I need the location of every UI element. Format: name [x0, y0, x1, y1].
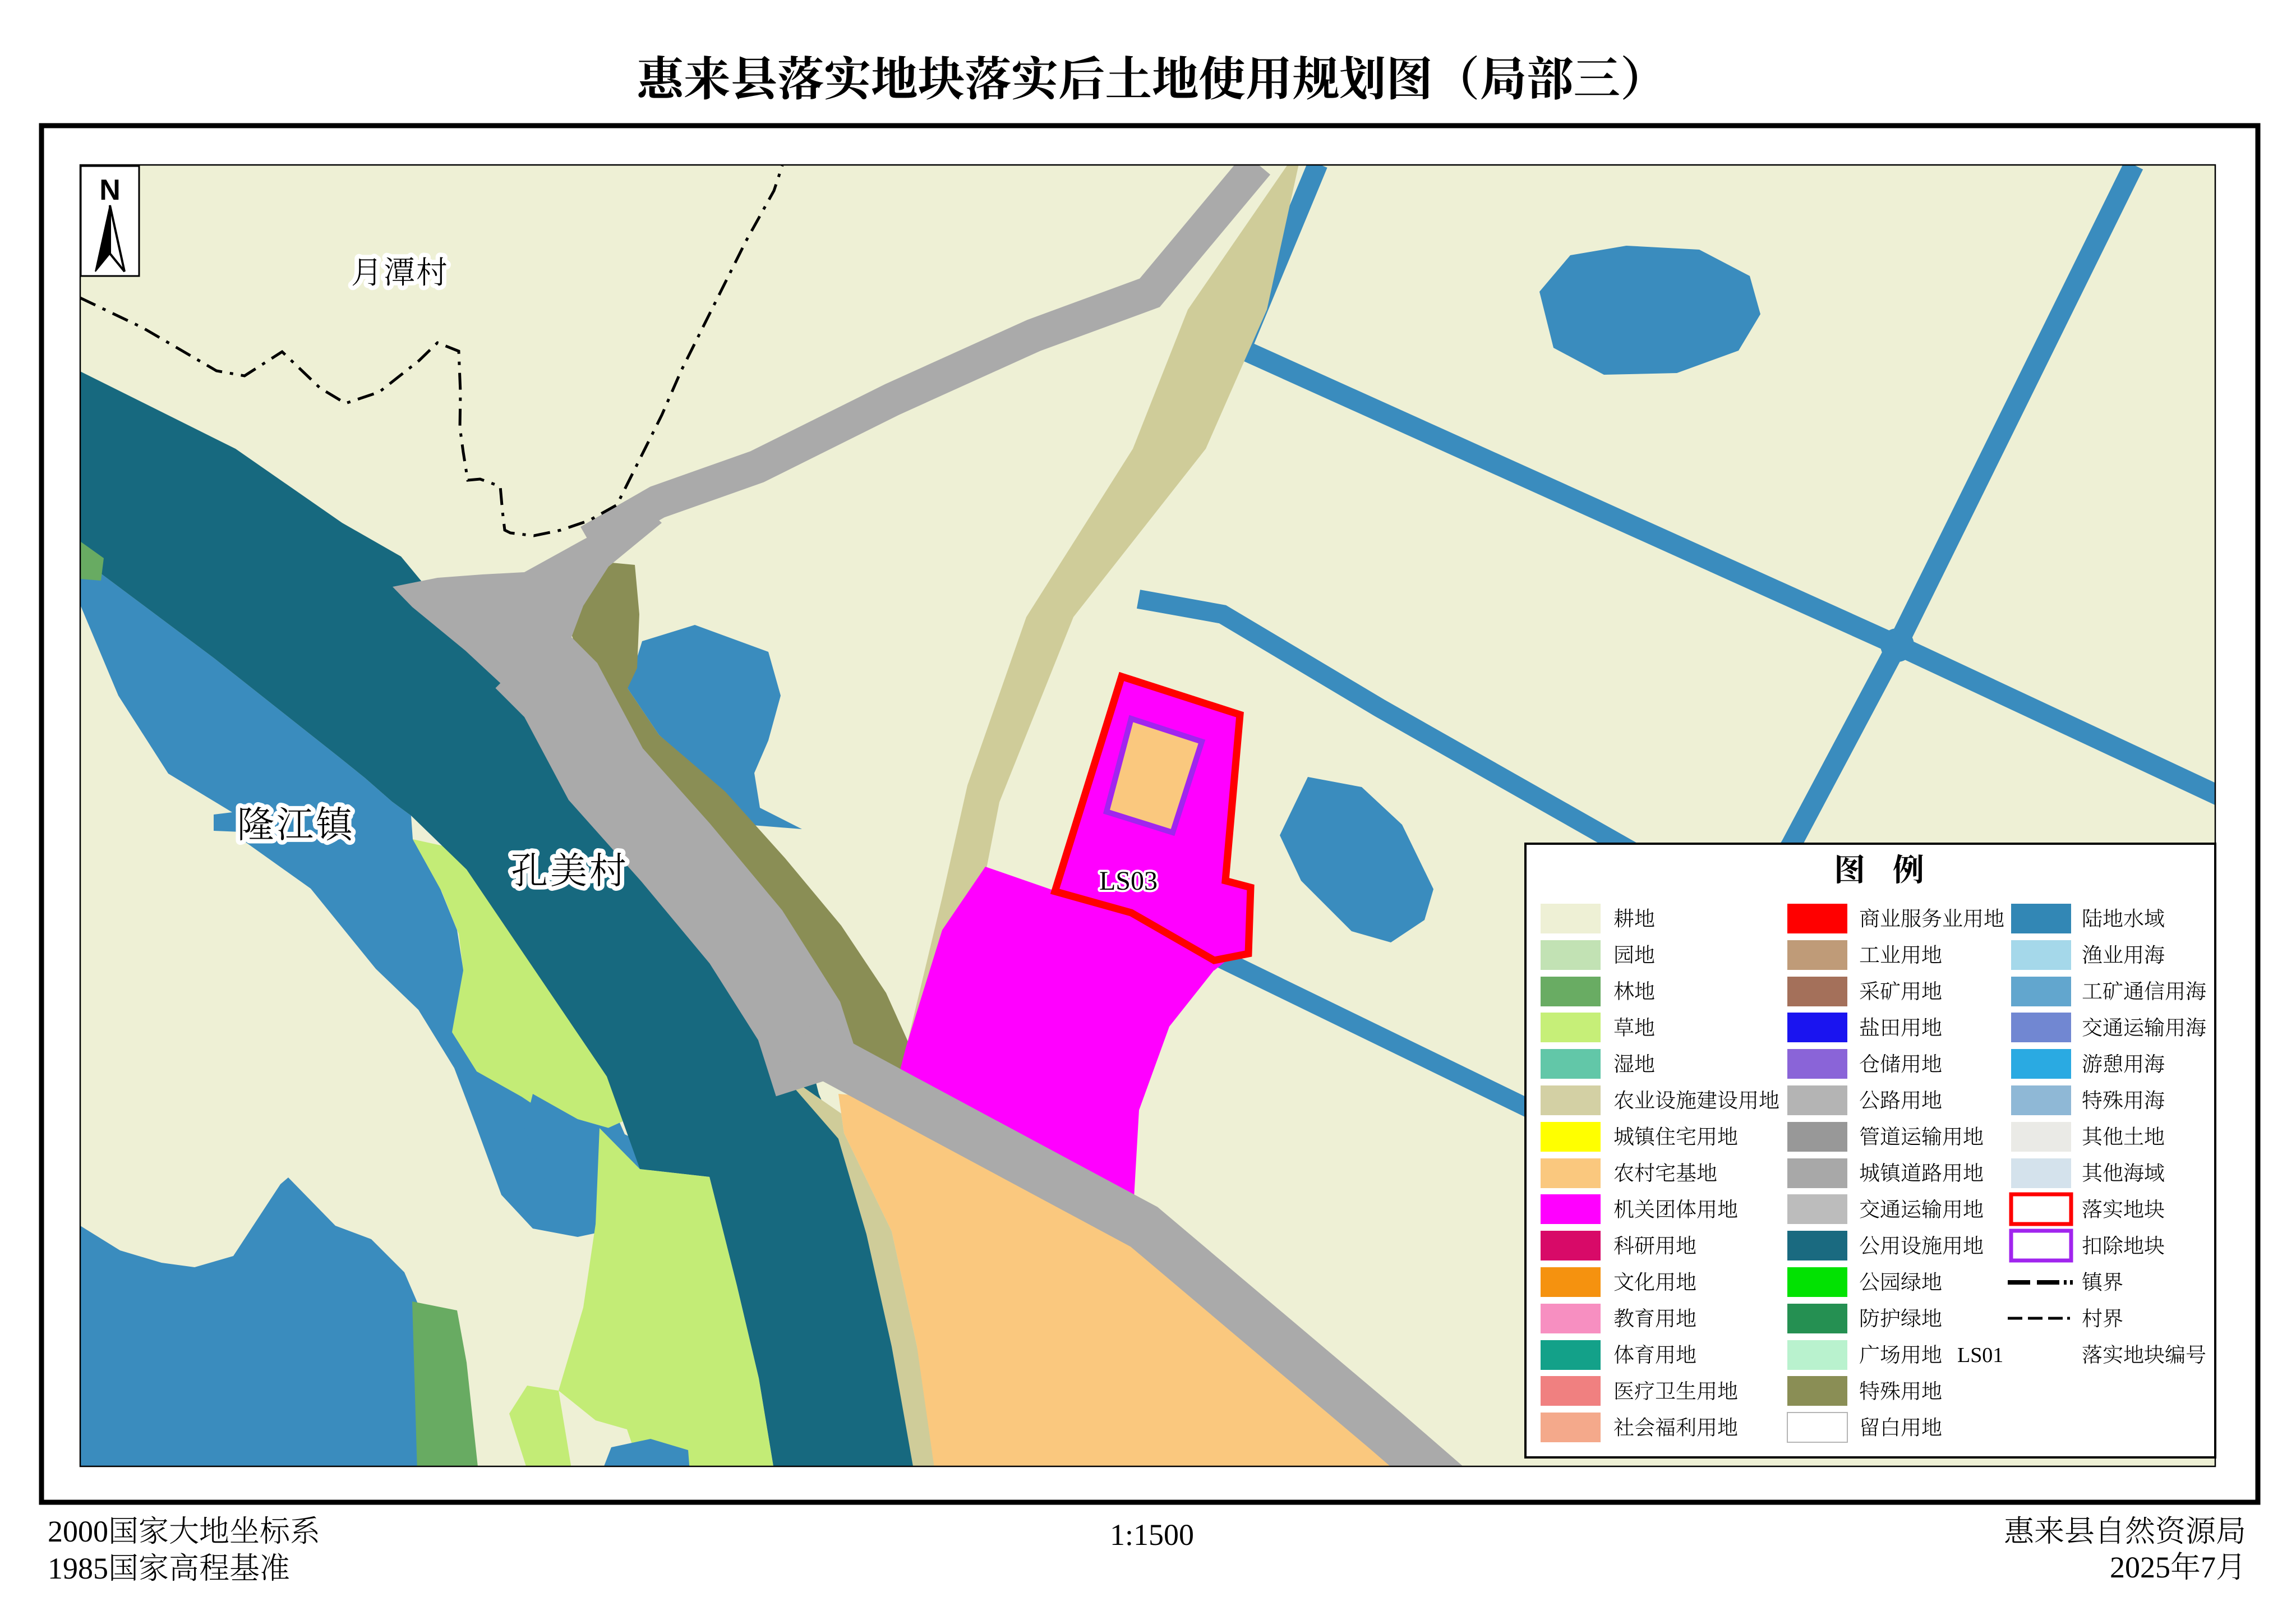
svg-text:2: 2	[48, 1515, 63, 1548]
svg-text::: :	[1125, 1518, 1133, 1552]
svg-text:7: 7	[2201, 1551, 2216, 1584]
svg-text:5: 5	[1149, 1518, 1164, 1552]
svg-text:8: 8	[78, 1552, 93, 1585]
svg-text:0: 0	[1164, 1518, 1179, 1552]
svg-text:0: 0	[1982, 1344, 1993, 1367]
svg-text:0: 0	[78, 1515, 93, 1548]
svg-text:L: L	[1099, 866, 1115, 896]
svg-text:1: 1	[48, 1552, 63, 1585]
svg-text:0: 0	[1131, 866, 1144, 896]
svg-text:0: 0	[2125, 1551, 2140, 1584]
svg-text:0: 0	[93, 1515, 108, 1548]
svg-text:2: 2	[2140, 1551, 2155, 1584]
svg-text:0: 0	[1179, 1518, 1194, 1552]
svg-text:1: 1	[1993, 1344, 2003, 1367]
svg-text:3: 3	[1144, 866, 1158, 896]
svg-text:1: 1	[1133, 1518, 1149, 1552]
svg-text:0: 0	[63, 1515, 78, 1548]
svg-text:5: 5	[2155, 1551, 2170, 1584]
svg-text:S: S	[1115, 866, 1131, 896]
svg-text:1: 1	[1110, 1518, 1125, 1552]
svg-text:2: 2	[2110, 1551, 2125, 1584]
svg-text:N: N	[99, 174, 121, 206]
svg-text:L: L	[1957, 1344, 1970, 1367]
svg-text:S: S	[1970, 1344, 1982, 1367]
svg-text:9: 9	[63, 1552, 78, 1585]
svg-text:5: 5	[93, 1552, 108, 1585]
